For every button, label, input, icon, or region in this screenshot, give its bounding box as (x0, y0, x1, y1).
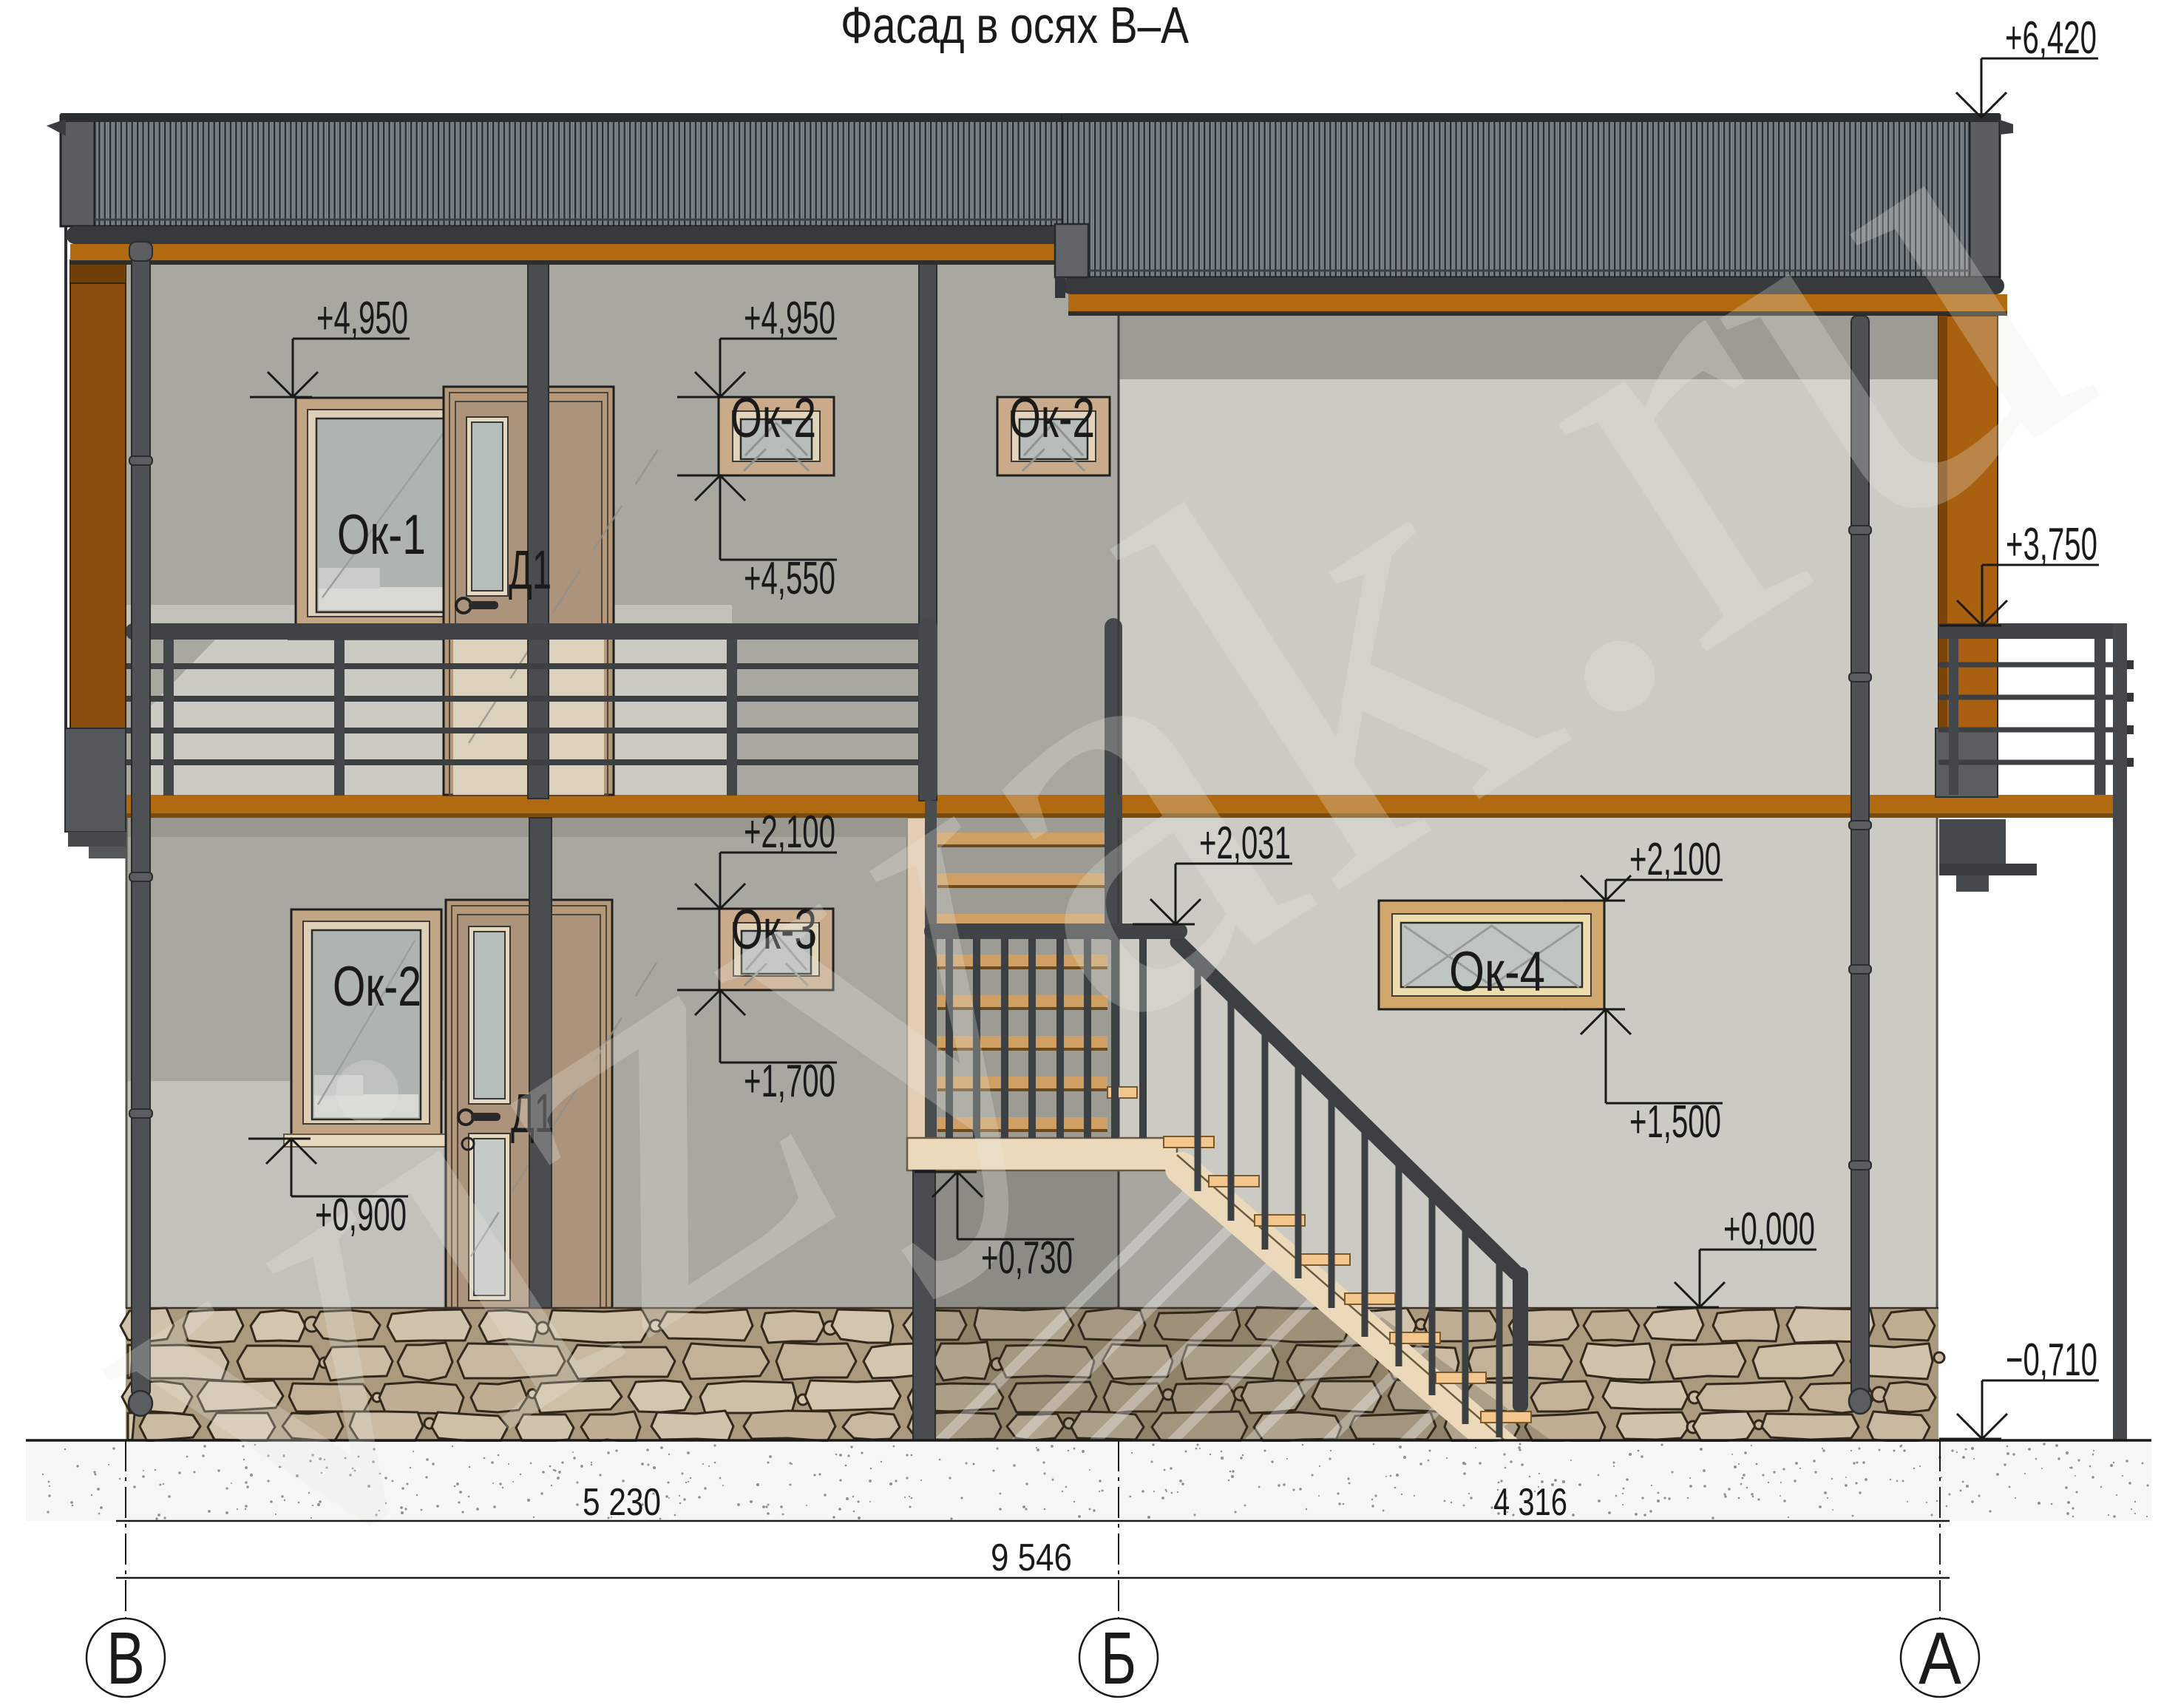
svg-text:+0,000: +0,000 (1723, 1204, 1815, 1255)
svg-text:+1,700: +1,700 (744, 1056, 835, 1107)
svg-text:В: В (106, 1617, 145, 1700)
svg-text:−0,710: −0,710 (2006, 1335, 2097, 1386)
svg-text:А: А (1919, 1617, 1961, 1700)
svg-text:+4,550: +4,550 (744, 553, 835, 604)
svg-text:+2,100: +2,100 (744, 807, 835, 858)
svg-text:Ок-2: Ок-2 (730, 387, 816, 450)
svg-text:9 546: 9 546 (991, 1536, 1072, 1579)
svg-text:+3,750: +3,750 (2006, 519, 2097, 570)
svg-text:+2,031: +2,031 (1199, 818, 1291, 869)
svg-text:Ок-1: Ок-1 (337, 504, 426, 566)
svg-text:+6,420: +6,420 (2005, 13, 2097, 64)
svg-text:4 316: 4 316 (1493, 1481, 1567, 1524)
svg-text:5 230: 5 230 (583, 1481, 661, 1524)
svg-text:Фасад в осях В–А: Фасад в осях В–А (841, 0, 1189, 54)
svg-text:+0,900: +0,900 (315, 1190, 407, 1241)
svg-text:+2,100: +2,100 (1629, 834, 1721, 885)
svg-text:+1,500: +1,500 (1629, 1097, 1721, 1148)
svg-text:Д1: Д1 (509, 539, 552, 600)
svg-text:+0,730: +0,730 (981, 1233, 1073, 1284)
svg-text:+4,950: +4,950 (316, 293, 408, 344)
svg-text:Б: Б (1101, 1617, 1136, 1700)
svg-text:+4,950: +4,950 (744, 293, 835, 344)
